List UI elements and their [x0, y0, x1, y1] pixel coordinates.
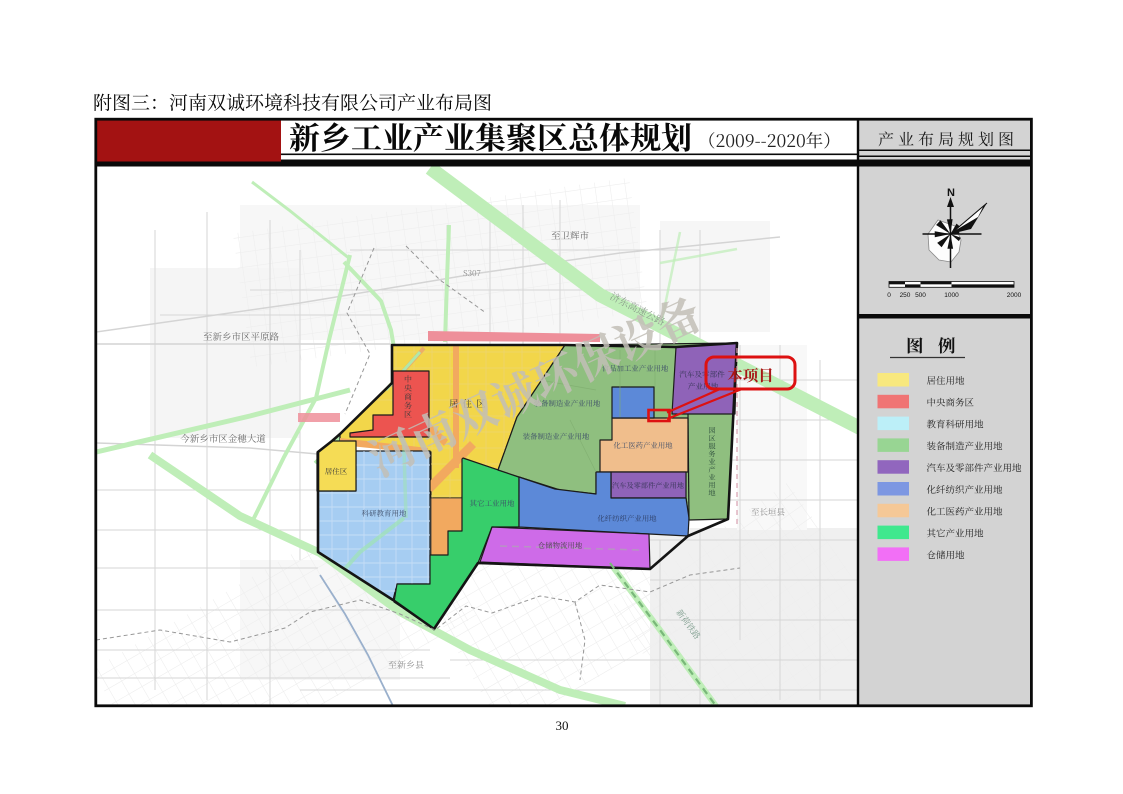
- svg-text:1000: 1000: [944, 292, 959, 299]
- svg-text:500: 500: [915, 292, 926, 299]
- svg-text:N: N: [947, 187, 955, 199]
- svg-text:250: 250: [900, 292, 911, 299]
- svg-text:2000: 2000: [1007, 292, 1022, 299]
- svg-text:0: 0: [887, 292, 891, 299]
- svg-text:30: 30: [556, 718, 569, 733]
